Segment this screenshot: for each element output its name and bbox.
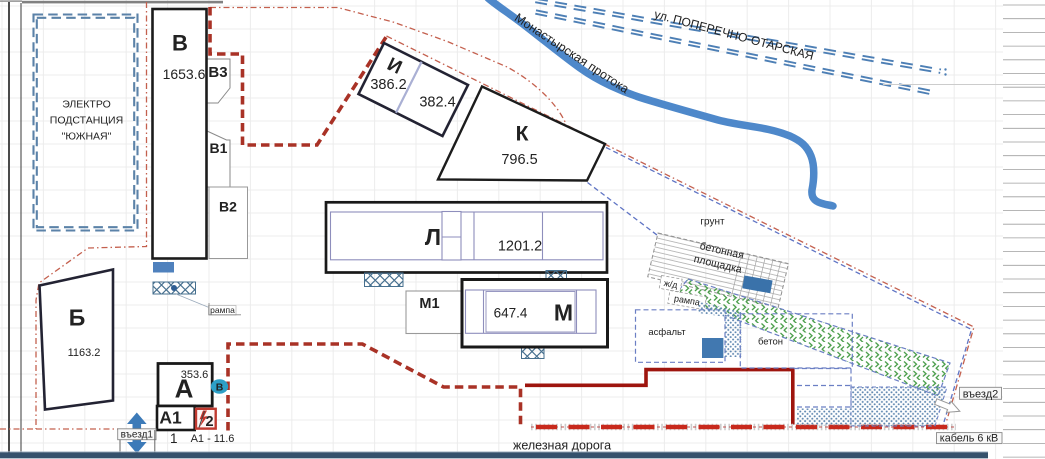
svg-text:асфальт: асфальт	[648, 327, 686, 338]
svg-text:бетон: бетон	[758, 337, 783, 348]
svg-text:В: В	[216, 382, 224, 394]
svg-text:1201.2: 1201.2	[498, 238, 542, 254]
svg-text:грунт: грунт	[700, 217, 725, 228]
svg-text:А1 - 11.6: А1 - 11.6	[191, 433, 235, 445]
svg-text:ПОДСТАНЦИЯ: ПОДСТАНЦИЯ	[50, 115, 123, 127]
svg-text:В3: В3	[208, 64, 227, 81]
svg-text:рампа: рампа	[210, 305, 235, 315]
svg-text:386.2: 386.2	[370, 77, 406, 93]
svg-text:2: 2	[205, 414, 213, 430]
svg-text:А: А	[175, 374, 194, 404]
svg-text:К: К	[516, 123, 529, 146]
svg-text:382.4: 382.4	[419, 95, 455, 111]
svg-text:796.5: 796.5	[501, 152, 537, 168]
svg-text:1653.6: 1653.6	[163, 66, 206, 82]
svg-text:В2: В2	[219, 199, 237, 215]
svg-text:1163.2: 1163.2	[68, 347, 101, 359]
svg-text:въезд1: въезд1	[121, 430, 154, 441]
svg-text:Л: Л	[425, 224, 441, 250]
svg-text:В1: В1	[210, 140, 228, 156]
svg-text:М: М	[554, 300, 573, 326]
svg-text:кабель 6 кВ: кабель 6 кВ	[940, 433, 999, 445]
svg-text:1: 1	[170, 431, 178, 446]
svg-text:647.4: 647.4	[494, 305, 528, 320]
svg-text:въезд2: въезд2	[963, 388, 999, 400]
svg-text:В: В	[172, 31, 188, 56]
svg-text:железная дорога: железная дорога	[513, 439, 611, 453]
svg-text:М1: М1	[419, 296, 439, 312]
svg-text:"ЮЖНАЯ": "ЮЖНАЯ"	[62, 131, 112, 143]
svg-text:Б: Б	[69, 305, 86, 331]
svg-text:ЭЛЕКТРО: ЭЛЕКТРО	[62, 99, 111, 111]
svg-text:А1: А1	[159, 408, 182, 428]
